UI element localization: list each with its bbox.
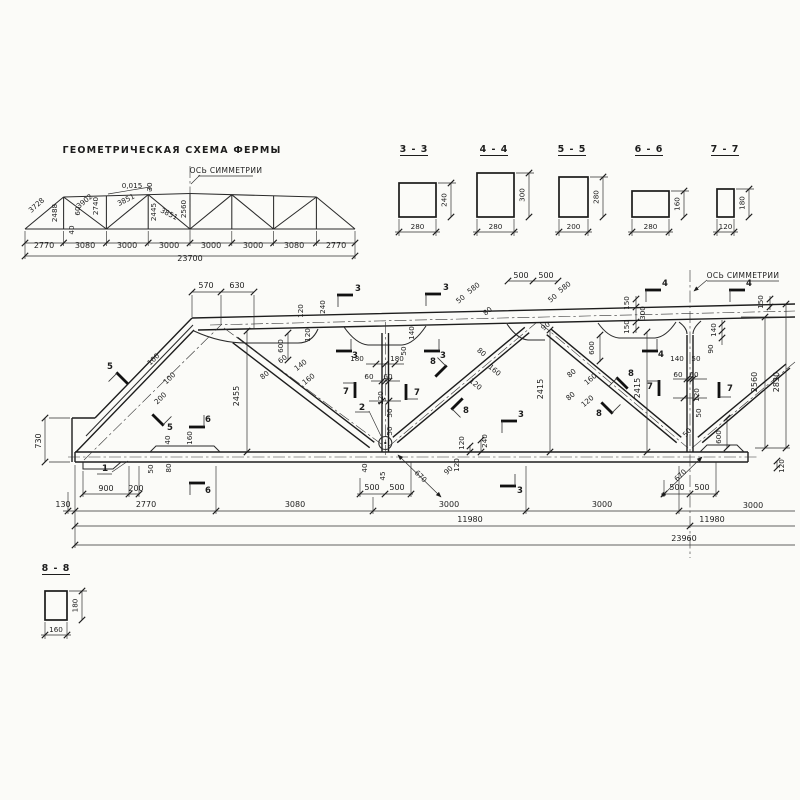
- dim-label: 60: [383, 372, 393, 381]
- dim-label: 120: [457, 436, 466, 450]
- scheme-member: [274, 197, 317, 229]
- dim-label: 580: [465, 280, 482, 296]
- diagonal-2: [393, 327, 529, 442]
- cross-section-7-7: 7 - 7180120: [711, 144, 754, 236]
- section-flag-3: [500, 474, 516, 486]
- scheme-dim-label: 0,015: [122, 181, 143, 190]
- node-label: 2: [359, 403, 365, 413]
- centerline: [224, 328, 384, 446]
- dim-label: 140: [670, 354, 684, 363]
- section-flag-label: 4: [662, 279, 668, 289]
- truss-end-member: [72, 318, 194, 462]
- main-truss-view: ОСЬ СИММЕТРИИ 556633333344477778888 5706…: [34, 270, 795, 558]
- section-flag-label: 6: [205, 486, 211, 496]
- scheme-dim-label: 3851: [116, 192, 136, 208]
- section-title: 7 - 7: [711, 144, 740, 155]
- dim-label: 670: [413, 468, 429, 484]
- dim-label: 570: [198, 281, 213, 290]
- cross-section-8-8: 8 - 8180160: [41, 563, 87, 639]
- section-width-label: 280: [644, 222, 658, 231]
- scheme-member: [190, 194, 316, 198]
- section-height-label: 160: [673, 197, 682, 211]
- section-flag-label: 5: [107, 362, 113, 372]
- section-height-label: 300: [518, 188, 527, 202]
- section-title: 5 - 5: [558, 144, 587, 155]
- scheme-title: ГЕОМЕТРИЧЕСКАЯ СХЕМА ФЕРМЫ: [62, 145, 281, 156]
- scheme-dim-label: 3000: [243, 241, 263, 250]
- flag-bar: [451, 398, 462, 409]
- dim-label: 300: [638, 306, 647, 320]
- dim-label: 600: [587, 341, 596, 355]
- section-height-label: 280: [592, 190, 601, 204]
- section-outline: [399, 183, 436, 217]
- dim-label: 2415: [633, 378, 642, 398]
- dim-label: 130: [55, 500, 70, 509]
- dim-label: 3080: [285, 500, 305, 509]
- dim-label: 50: [385, 426, 394, 436]
- top-chord: [192, 304, 795, 330]
- section-flag-6: [189, 415, 205, 427]
- dim-label: 670: [672, 467, 688, 483]
- dim-label: 580: [556, 279, 573, 295]
- dim-label: 160: [185, 431, 194, 445]
- dim-label: 500: [513, 271, 528, 280]
- section-flag-8: [601, 394, 621, 414]
- dim-label: 500: [364, 483, 379, 492]
- dim-label: 60: [276, 352, 289, 365]
- dim-label: 500: [669, 483, 684, 492]
- dim-label: 120: [692, 388, 701, 402]
- cross-section-6-6: 6 - 6160280: [628, 144, 689, 236]
- dim-label: 50: [146, 464, 155, 474]
- dim-label: 80: [565, 366, 578, 379]
- dim-label: 180: [350, 354, 364, 363]
- dim-label: 50: [691, 354, 701, 363]
- flag-bar: [435, 365, 446, 376]
- scheme-dim-label: 3080: [75, 241, 95, 250]
- dim-label: 2830: [772, 372, 781, 392]
- haunch-apex: [194, 329, 318, 343]
- section-outline: [45, 591, 67, 620]
- section-title: 8 - 8: [42, 563, 71, 574]
- section-flag-label: 8: [430, 357, 436, 367]
- section-flag-label: 8: [628, 369, 634, 379]
- dim-label: 90: [706, 344, 715, 354]
- section-flag-6: [189, 483, 205, 495]
- dim-label: 60: [364, 372, 374, 381]
- dim-label: 140: [709, 323, 718, 337]
- dim-label: 3000: [439, 500, 459, 509]
- dim-label: 160: [486, 362, 503, 378]
- dim-label: 3000: [592, 500, 612, 509]
- section-flag-label: 7: [727, 384, 733, 394]
- dim-label: 100: [161, 370, 177, 386]
- dim-label: 50: [385, 408, 394, 418]
- scheme-member: [232, 195, 274, 229]
- scheme-dim-label: 3080: [284, 241, 304, 250]
- dim-label: 600: [276, 339, 285, 353]
- dim-label: 500: [538, 271, 553, 280]
- scheme-dim-label: 2560: [179, 199, 188, 218]
- dim-label: 23960: [671, 534, 696, 543]
- scheme-dim-label: 2770: [34, 241, 54, 250]
- dim-label: 500: [694, 483, 709, 492]
- section-flag-label: 3: [355, 284, 361, 294]
- scheme-member: [316, 197, 355, 229]
- dim-label: 45: [378, 471, 387, 480]
- dim-label: 100: [145, 351, 161, 367]
- bottom-chord-haunch-right: [700, 445, 744, 452]
- scheme-dim-label: 2488: [50, 203, 59, 222]
- section-flag-label: 5: [167, 423, 173, 433]
- flag-bar: [152, 414, 163, 425]
- section-flag-label: 7: [414, 388, 420, 398]
- scheme-dim-label: 23700: [177, 254, 202, 263]
- dim-label: 730: [34, 433, 43, 448]
- section-flag-3: [424, 339, 440, 351]
- dim-label: 160: [582, 371, 599, 387]
- section-outline: [632, 191, 669, 217]
- dim-label: 200: [128, 484, 143, 493]
- dim-label: 600: [714, 430, 723, 444]
- dim-label: 60: [689, 370, 699, 379]
- section-flag-label: 4: [658, 350, 664, 360]
- section-width-label: 200: [567, 222, 581, 231]
- scheme-dim-label: 3851: [159, 206, 179, 222]
- dim-label: 40: [360, 463, 369, 473]
- dim-label: 2455: [232, 386, 241, 406]
- scheme-dim-label: 3000: [117, 241, 137, 250]
- dim-label: 120: [296, 304, 305, 318]
- dim-label: 80: [164, 463, 173, 473]
- main-dimension-labels: 5706301202401206001001002008060140160245…: [34, 271, 786, 543]
- scheme-dim-label: 60: [73, 206, 82, 216]
- cross-section-5-5: 5 - 5280200: [555, 144, 608, 236]
- section-height-label: 240: [440, 193, 449, 207]
- node-label: 1: [102, 464, 108, 474]
- main-axis-of-symmetry-label: ОСЬ СИММЕТРИИ: [707, 271, 780, 280]
- dim-label: 120: [376, 391, 385, 405]
- dim-label: 80: [481, 304, 494, 317]
- dim-label: 2415: [536, 379, 545, 399]
- scheme-dim-label: 3000: [159, 241, 179, 250]
- section-flag-label: 4: [746, 279, 752, 289]
- section-flag-5: [108, 372, 128, 392]
- cross-section-4-4: 4 - 4300280: [473, 144, 534, 236]
- dim-label: 900: [98, 484, 113, 493]
- section-flag-label: 3: [443, 283, 449, 293]
- section-flag-label: 8: [596, 409, 602, 419]
- diagonal-3: [547, 329, 682, 442]
- scheme-dim-label: 2770: [326, 241, 346, 250]
- dim-label: 60: [673, 370, 683, 379]
- scheme-dim-label: 30: [145, 182, 154, 192]
- section-flag-label: 3: [518, 410, 524, 420]
- flag-bar: [616, 377, 627, 388]
- dim-label: 150: [622, 320, 631, 334]
- dim-label: 630: [229, 281, 244, 290]
- truss-end-member-flange-line: [86, 325, 193, 436]
- dim-label: 140: [407, 326, 416, 340]
- node-hole-center: [384, 442, 386, 444]
- section-flag-4: [642, 339, 658, 351]
- axis-label-leader: [694, 280, 707, 291]
- flag-bar: [601, 402, 612, 413]
- cross-section-3-3: 3 - 3240280: [395, 144, 456, 236]
- section-outline: [717, 189, 734, 217]
- scheme-truss-outline: [25, 166, 355, 231]
- dim-label: 160: [300, 371, 317, 387]
- section-height-label: 180: [738, 196, 747, 210]
- centerline: [540, 323, 688, 448]
- centerline: [84, 324, 222, 460]
- dim-label: 50: [454, 292, 467, 305]
- dim-label: 11980: [699, 515, 724, 524]
- flag-stem: [612, 404, 620, 412]
- section-flag-label: 3: [517, 486, 523, 496]
- dim-label: 150: [756, 295, 765, 309]
- dim-label: 40: [163, 435, 172, 445]
- section-width-label: 160: [49, 625, 63, 634]
- section-flag-label: 6: [205, 415, 211, 425]
- dim-label: 120: [777, 459, 786, 473]
- section-outline: [559, 177, 588, 217]
- section-height-label: 180: [71, 598, 80, 612]
- dim-label: 200: [152, 390, 168, 406]
- section-flag-4: [729, 290, 745, 302]
- dim-label: 50: [681, 426, 694, 439]
- dim-label: 150: [622, 296, 631, 310]
- section-flag-3: [336, 339, 352, 351]
- flag-stem: [109, 373, 117, 381]
- dim-label: 120: [452, 458, 461, 472]
- dim-label: 50: [694, 408, 703, 418]
- section-title: 4 - 4: [480, 144, 509, 155]
- section-flag-label: 7: [647, 382, 653, 392]
- scheme-dim-label: 40: [67, 225, 76, 235]
- scheme-dim-label: 2740: [91, 196, 100, 215]
- dim-label: 2560: [750, 372, 759, 392]
- dim-label: 11980: [457, 515, 482, 524]
- scheme-axis-of-symmetry-label: ОСЬ СИММЕТРИИ: [190, 166, 263, 175]
- dim-label: 240: [480, 434, 489, 448]
- haunch-axis-node: [598, 322, 676, 338]
- dim-label: 140: [292, 357, 309, 373]
- section-flag-label: 3: [440, 351, 446, 361]
- scheme-dim-label: 3728: [27, 195, 47, 214]
- section-flag-3: [337, 295, 353, 307]
- section-flag-3: [425, 294, 441, 306]
- centerline: [388, 323, 536, 447]
- dim-label: 120: [579, 393, 596, 409]
- section-flag-3: [501, 421, 517, 433]
- section-title: 6 - 6: [635, 144, 664, 155]
- section-width-label: 280: [411, 222, 425, 231]
- dim-label: 120: [467, 376, 484, 392]
- section-width-label: 120: [719, 222, 733, 231]
- section-width-label: 280: [489, 222, 503, 231]
- section-outline: [477, 173, 514, 217]
- flag-stem: [452, 409, 460, 417]
- dim-label: 3000: [743, 501, 763, 510]
- dim-label: 120: [303, 328, 312, 342]
- scheme-dim-label: 2445: [149, 203, 158, 221]
- dim-label: 80: [564, 389, 577, 402]
- truss-engineering-drawing: ГЕОМЕТРИЧЕСКАЯ СХЕМА ФЕРМЫ ОСЬ СИММЕТРИИ…: [0, 0, 800, 800]
- dim-label: 50: [399, 346, 408, 356]
- dim-label: 240: [318, 300, 327, 314]
- section-flag-label: 8: [463, 406, 469, 416]
- dim-label: 50: [546, 291, 559, 304]
- axis-label-leader: [191, 175, 200, 184]
- bottom-chord-doubler-left: [150, 446, 220, 452]
- section-flag-label: 7: [343, 387, 349, 397]
- geometric-scheme: ГЕОМЕТРИЧЕСКАЯ СХЕМА ФЕРМЫ ОСЬ СИММЕТРИИ…: [22, 145, 358, 263]
- section-cut-flags: 556633333344477778888: [107, 279, 752, 496]
- scheme-dim-label: 3000: [201, 241, 221, 250]
- scheme-member: [190, 195, 232, 229]
- section-flag-4: [645, 290, 661, 302]
- flag-bar: [116, 372, 127, 383]
- dim-label: 2770: [136, 500, 156, 509]
- dim-label: 80: [475, 346, 488, 359]
- node-label-leaders: [97, 411, 381, 474]
- dim-label: 500: [389, 483, 404, 492]
- section-title: 3 - 3: [400, 144, 429, 155]
